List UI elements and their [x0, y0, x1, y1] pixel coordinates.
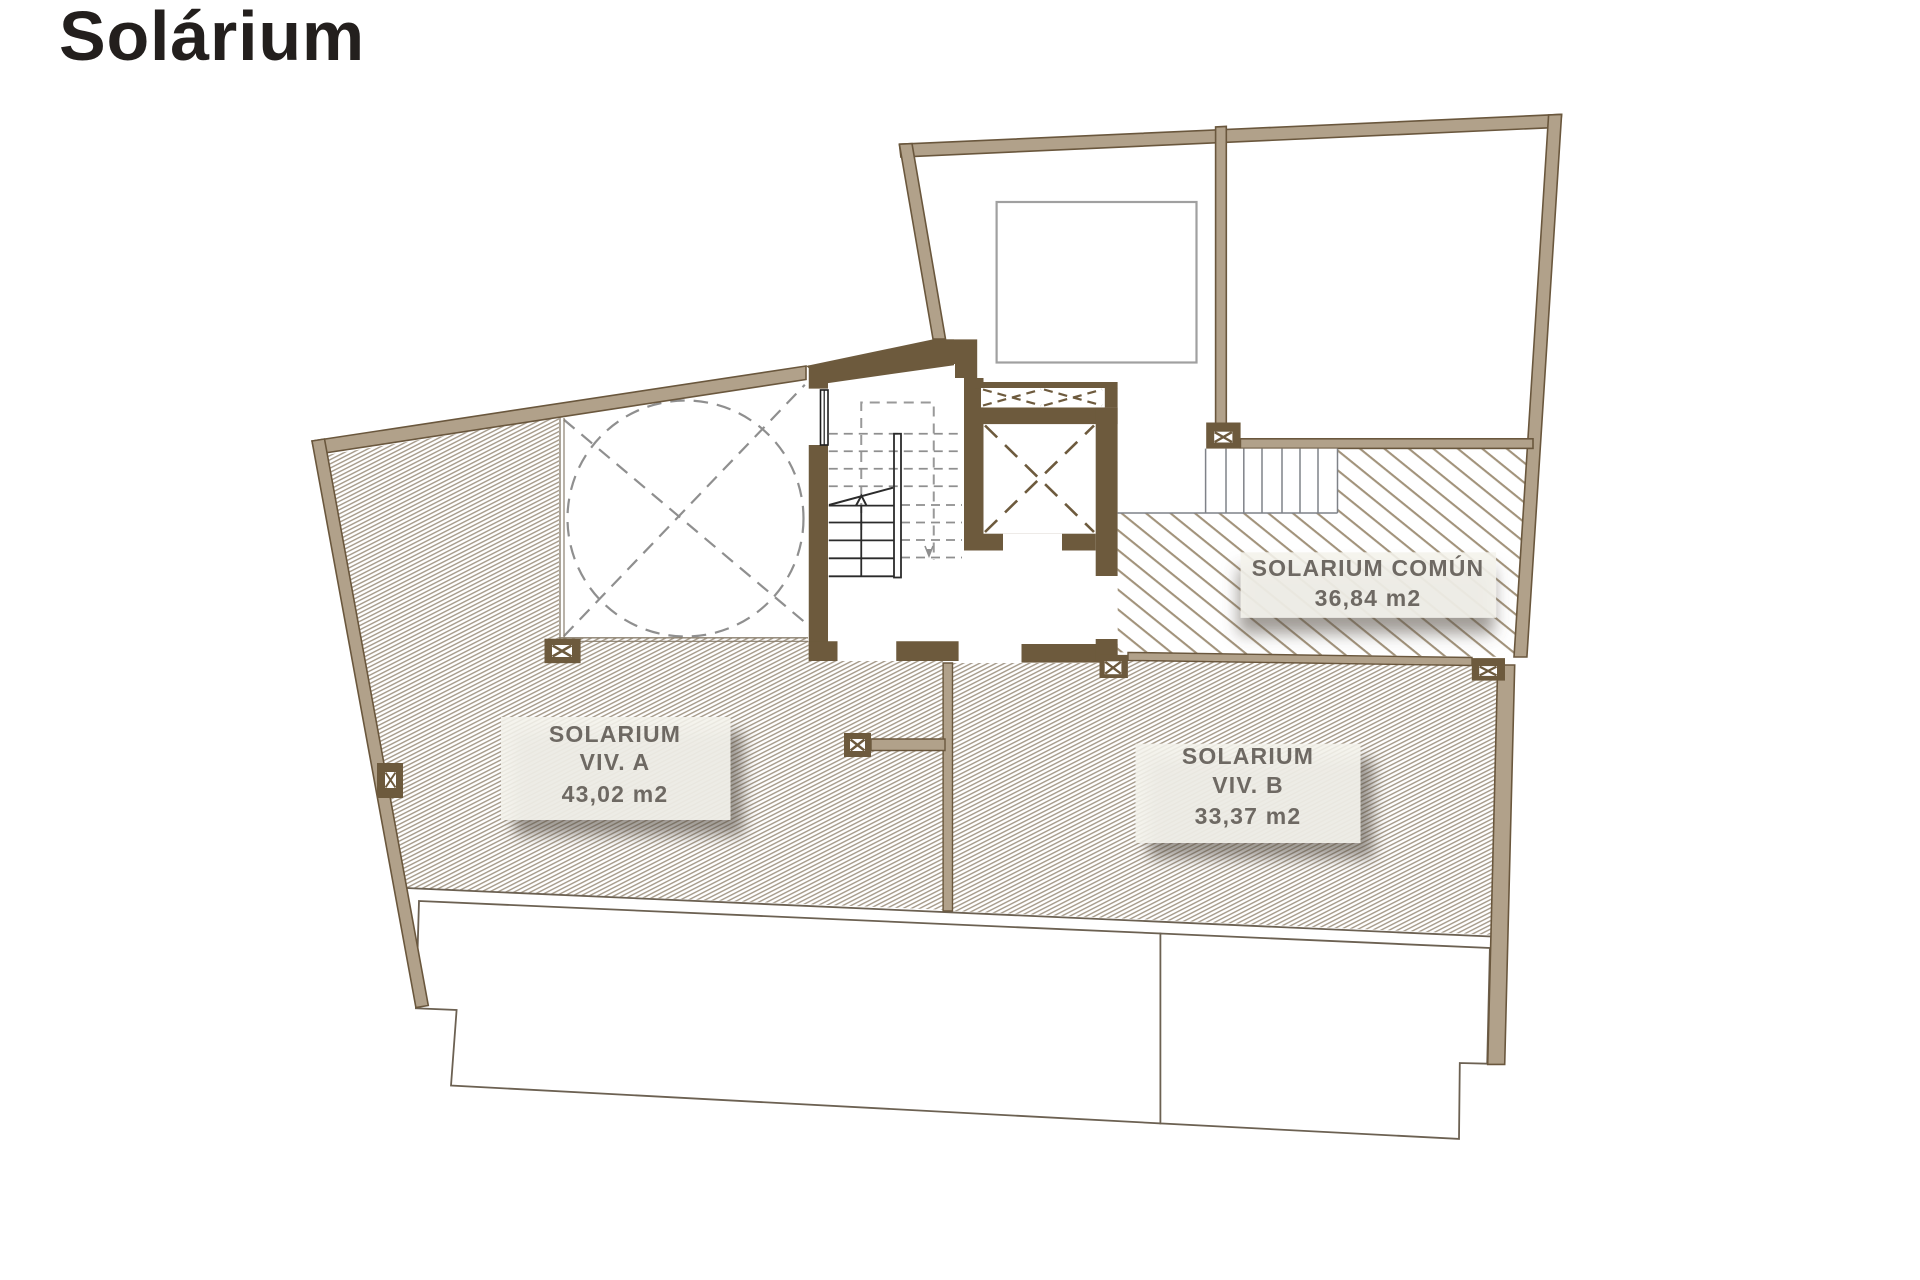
- svg-text:SOLARIUM COMÚN: SOLARIUM COMÚN: [1252, 554, 1485, 581]
- svg-text:VIV. A: VIV. A: [580, 749, 651, 775]
- svg-text:33,37 m2: 33,37 m2: [1195, 803, 1302, 829]
- svg-text:SOLARIUM: SOLARIUM: [549, 721, 681, 747]
- svg-text:VIV. B: VIV. B: [1212, 772, 1284, 798]
- svg-text:Solárium: Solárium: [59, 0, 365, 75]
- svg-text:SOLARIUM: SOLARIUM: [1182, 743, 1314, 769]
- svg-text:36,84 m2: 36,84 m2: [1315, 585, 1422, 611]
- svg-text:43,02 m2: 43,02 m2: [562, 781, 669, 807]
